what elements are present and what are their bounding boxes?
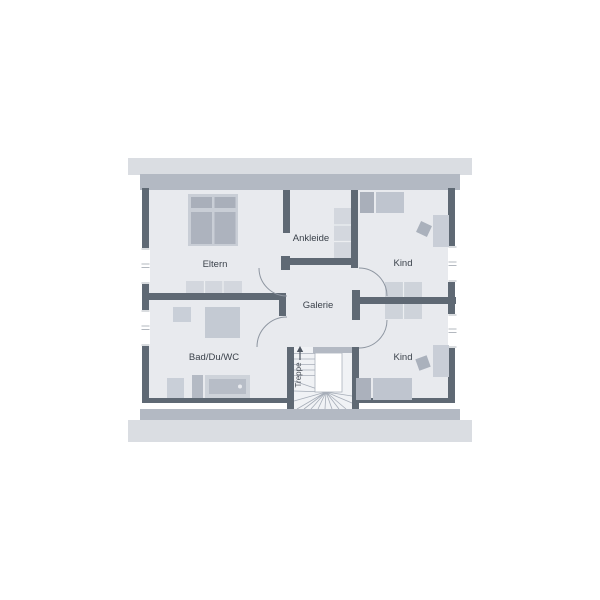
exterior-wall-bottom: [140, 409, 460, 420]
wall-jamb-galerie-e: [352, 290, 360, 320]
cabinet-icon: [192, 375, 203, 398]
wall-left-upper: [142, 188, 149, 248]
stairwell-void: [315, 353, 342, 392]
stair-landing-edge: [313, 347, 352, 353]
wall-jamb-galerie-nw: [281, 256, 290, 270]
wardrobe-icon: [385, 304, 422, 319]
room-label-ankleide: Ankleide: [293, 233, 329, 244]
dresser-icon: [186, 281, 242, 293]
wall-bottom-left: [149, 398, 287, 403]
bathtub-icon: [205, 375, 250, 398]
wardrobe-icon: [385, 282, 422, 297]
wardrobe-icon: [334, 208, 351, 258]
wc-icon: [173, 307, 191, 322]
room-label-galerie: Galerie: [303, 300, 334, 311]
room-label-kind-top: Kind: [393, 258, 412, 269]
wall-right-lower: [448, 348, 455, 403]
wall-ankleide-kind: [351, 190, 358, 268]
roof-band-top: [128, 158, 472, 175]
floor-plan-page: Eltern Ankleide Kind Galerie Bad/Du/WC K…: [0, 0, 600, 600]
wall-stair-left: [287, 347, 294, 409]
desk-icon: [433, 345, 449, 377]
wall-eltern-ankleide: [283, 190, 290, 233]
bed-icon: [356, 378, 412, 400]
bed-icon: [360, 192, 404, 213]
room-label-eltern: Eltern: [203, 259, 228, 270]
wall-jamb-galerie-sw: [279, 293, 286, 316]
double-bed-icon: [188, 194, 238, 246]
stair-label-treppe: Treppe: [294, 362, 303, 388]
wall-eltern-bad: [149, 293, 286, 300]
shower-icon: [205, 307, 240, 338]
window-eltern-icon: [141, 248, 150, 284]
wall-left-middle: [142, 284, 149, 310]
wall-right-upper: [448, 188, 455, 246]
floor-plan: Eltern Ankleide Kind Galerie Bad/Du/WC K…: [0, 0, 600, 600]
furniture-ankleide: [334, 208, 351, 258]
wall-ankleide-galerie: [281, 258, 355, 265]
washbasin-icon: [167, 378, 184, 398]
wall-kind-kind: [352, 297, 456, 304]
exterior-wall-top: [140, 174, 460, 190]
room-label-kind-bottom: Kind: [393, 352, 412, 363]
window-kind-bottom-icon: [448, 314, 457, 348]
wall-left-lower: [142, 346, 149, 403]
window-kind-top-icon: [448, 246, 457, 282]
window-bad-icon: [141, 310, 150, 346]
desk-icon: [433, 215, 449, 247]
roof-band-bottom: [128, 420, 472, 442]
room-label-bad: Bad/Du/WC: [189, 352, 239, 363]
